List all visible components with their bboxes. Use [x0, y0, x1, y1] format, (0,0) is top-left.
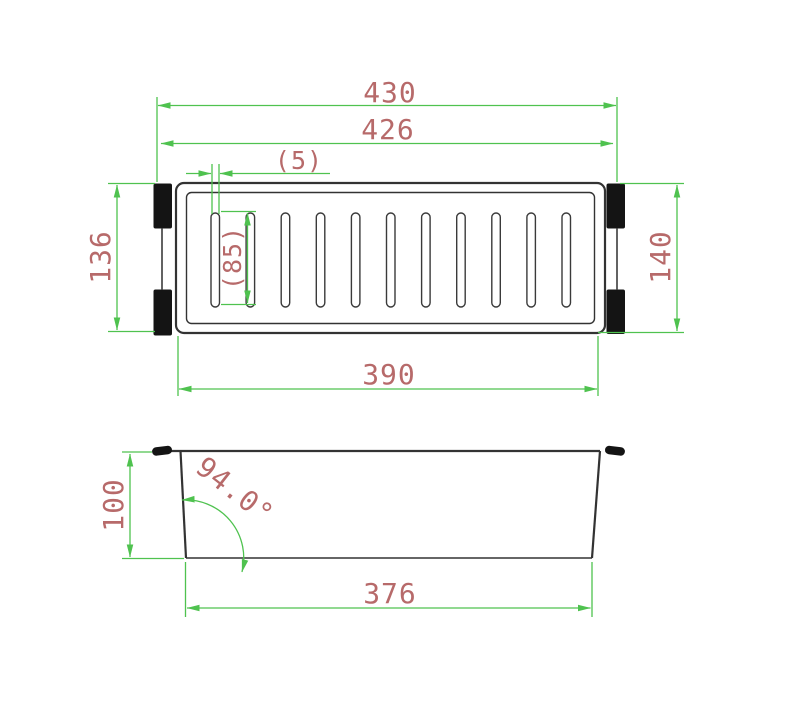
side-view: 100 94.0° 376 — [97, 445, 625, 617]
technical-drawing: 430 426 (5) (85) 136 — [0, 0, 800, 704]
dim-wall-angle: 94.0° — [182, 450, 280, 572]
slot-hole — [562, 213, 571, 307]
slot-hole — [422, 213, 431, 307]
dim-inner-width-label: 390 — [362, 358, 416, 391]
left-handle — [154, 184, 173, 336]
dim-overall-width-label: 430 — [363, 76, 417, 109]
dim-left-height-label: 136 — [84, 230, 117, 284]
profile-right-handle-end — [605, 445, 626, 456]
dim-base-width-label: 376 — [363, 577, 417, 610]
drawing-svg: 430 426 (5) (85) 136 — [0, 0, 800, 704]
top-view: 430 426 (5) (85) 136 — [84, 76, 684, 396]
dim-inner-width: 390 — [178, 336, 598, 396]
slot-hole — [527, 213, 536, 307]
dim-rim-width: 426 — [161, 113, 613, 146]
slot-hole — [316, 213, 325, 307]
dim-slot-length-label: (85) — [218, 226, 247, 290]
dim-left-height: 136 — [84, 184, 155, 332]
right-handle-bottom-tab — [607, 290, 626, 335]
slot-hole — [351, 213, 360, 307]
dim-rim-width-label: 426 — [361, 113, 415, 146]
dim-base-width: 376 — [186, 562, 593, 617]
profile-left-handle-end — [152, 445, 173, 456]
profile-right-wall — [592, 451, 600, 558]
dim-side-height: 100 — [97, 452, 184, 559]
right-handle-top-tab — [607, 184, 626, 229]
dim-slot-width-label: (5) — [275, 146, 323, 175]
left-handle-bottom-tab — [154, 290, 173, 336]
slot-hole — [492, 213, 501, 307]
right-handle — [607, 184, 626, 335]
dim-slot-width: (5) — [186, 146, 330, 214]
slot-holes — [211, 213, 571, 307]
dim-side-height-label: 100 — [97, 478, 130, 532]
profile-left-wall — [181, 451, 187, 558]
slot-hole — [457, 213, 466, 307]
slot-hole — [281, 213, 290, 307]
left-handle-top-tab — [154, 184, 173, 229]
dim-wall-angle-label: 94.0° — [190, 450, 281, 531]
slot-hole — [387, 213, 396, 307]
dim-right-height-label: 140 — [644, 230, 677, 284]
